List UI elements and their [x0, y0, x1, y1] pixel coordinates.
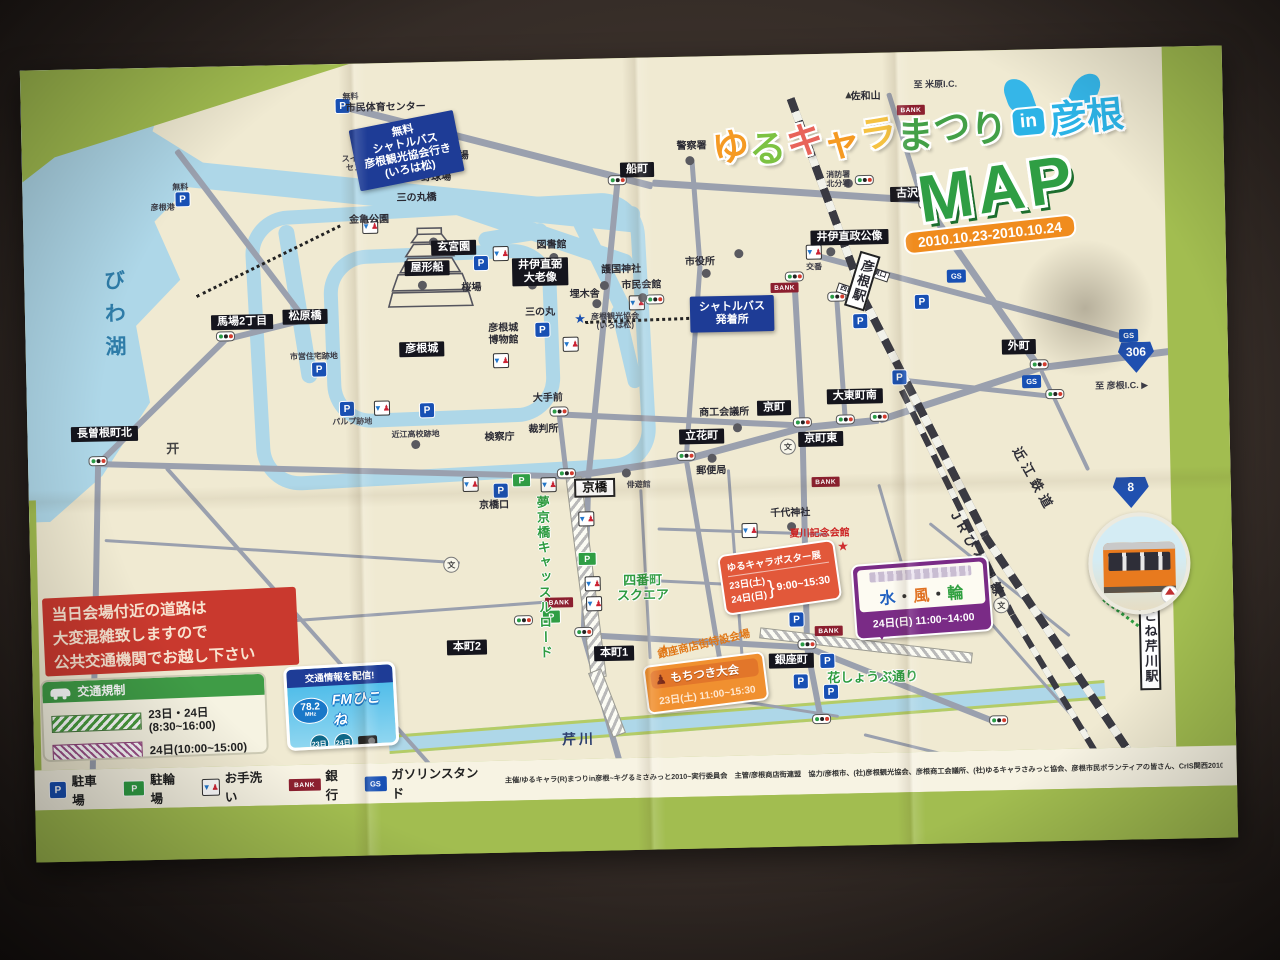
legend-label: ガソリンスタンド: [391, 762, 491, 802]
map-label: 外町: [1002, 339, 1036, 355]
toilet-icon: ▼♟: [586, 596, 602, 611]
traffic-signal-icon: [549, 406, 568, 416]
toilet-icon: ▼♟: [462, 477, 478, 492]
sui-fu-rin-char: 水: [879, 590, 897, 608]
toilet-icon: ▼♟: [540, 477, 556, 492]
fm-day-badge: 24日: [333, 733, 353, 752]
parking-icon: P: [473, 255, 489, 271]
title-place: 彦根: [1047, 83, 1126, 143]
map-label: 京町: [757, 400, 791, 416]
map-label: 船町: [620, 162, 654, 178]
map-label: 本町1: [594, 645, 634, 661]
parking-icon: P: [793, 673, 809, 689]
traffic-signal-icon: [797, 639, 816, 649]
paper-map: ゆるキャラまつりin彦根 MAP 2010.10.23-2010.10.24 3…: [20, 46, 1238, 863]
poster-date2: 24日(日): [731, 590, 768, 606]
traffic-signal-icon: [514, 615, 533, 625]
map-label: 無料: [342, 92, 358, 102]
school-icon: 文: [780, 439, 796, 455]
traffic-signal-icon: [836, 414, 855, 424]
fm-frequency-badge: 78.2 MHz: [292, 697, 329, 725]
map-label: 銀座町: [769, 653, 814, 669]
to-hikone-ic-label: 至 彦根I.C. ▶: [1095, 380, 1148, 392]
poster-dates: 23日(土) 24日(日): [729, 575, 769, 608]
title-char: キ: [781, 108, 826, 167]
title-in-badge: in: [1010, 105, 1047, 138]
title-char: る: [749, 118, 787, 173]
parking-icon: P: [311, 361, 327, 377]
map-label: 井伊直政公像: [810, 229, 888, 246]
map-label: 埋木舎: [570, 289, 600, 301]
regulation-time: 24日(10:00~15:00): [149, 738, 247, 758]
sui-fu-rin-char: ・: [930, 586, 948, 604]
map-label: 金亀公園: [349, 214, 389, 227]
credits-line: 主催/ゆるキャラ(R)まつりin彦根~キグるミさみっと2010~実行委員会 主管…: [505, 761, 1223, 786]
road: [689, 159, 702, 265]
legend-item-gas: GS ガソリンスタンド: [364, 762, 491, 803]
traffic-signal-icon: [870, 412, 889, 422]
map-label: 消防署 北分署: [826, 170, 850, 189]
congestion-notice: 当日会場付近の道路は 大変混雑致しますので 公共交通機関でお越し下さい: [42, 587, 299, 677]
map-label: 商工会議所: [699, 407, 749, 420]
sui-fu-rin-char: ・: [896, 589, 914, 607]
toilet-icon: ▼♟: [493, 246, 509, 261]
shuttle-bus-label: シャトルバス 発着所: [690, 295, 775, 333]
map-label: 四番町 スクエア: [616, 572, 669, 604]
poi-dot: [826, 247, 835, 256]
poi-dot: [702, 269, 711, 278]
map-label: 千代神社: [770, 507, 810, 520]
traffic-signal-icon: [989, 715, 1008, 725]
car-icon: [50, 688, 70, 697]
parking-icon: P: [493, 483, 509, 499]
traffic-signal-icon: [1030, 359, 1049, 369]
legend-label: 駐輪場: [150, 768, 188, 807]
road: [1037, 366, 1090, 472]
poi-dot: [733, 423, 742, 432]
parking-icon: P: [891, 369, 907, 385]
traffic-regulation-panel: 交通規制 23日・24日(8:30~16:00) 24日(10:00~15:00…: [40, 672, 269, 763]
poi-dot: [622, 468, 631, 477]
regulation-row: 24日(10:00~15:00): [52, 737, 259, 762]
parking-icon: P: [823, 684, 839, 700]
traffic-signal-icon: [88, 456, 107, 466]
parking-icon: P: [339, 401, 355, 417]
toilet-icon: ▼♟: [374, 400, 390, 415]
legend-item-bank: BANK 銀行: [288, 765, 351, 804]
map-label: 図書館: [536, 239, 566, 251]
parking-icon: P: [819, 653, 835, 669]
title-char: り: [970, 98, 1008, 153]
legend-label: お手洗い: [224, 766, 275, 805]
route-8-shield: 8: [1113, 477, 1150, 509]
map-label: 裁判所: [528, 424, 558, 436]
title-char: ラ: [855, 101, 900, 160]
map-label: 大東町南: [827, 388, 883, 404]
map-label: 夢京橋キャッスルロード: [534, 495, 553, 660]
traffic-signal-icon: [812, 714, 831, 724]
map-label: 三の丸橋: [396, 192, 436, 205]
map-label: 屋形船: [404, 260, 449, 276]
green-hatch-swatch: [51, 712, 142, 732]
map-label: 花しょうぶ通り: [827, 668, 918, 685]
map-label: 京橋口: [479, 500, 509, 512]
map-label: 彦根港: [151, 203, 175, 213]
photo-of-paper-map: { "title": { "chars": [ {"ch":"ゆ","color…: [0, 0, 1280, 960]
gas-station-icon: GS: [947, 269, 966, 282]
gas-station-icon: GS: [364, 776, 386, 791]
toilet-icon: ▼♟: [493, 353, 509, 368]
bicycle-parking-icon: P: [578, 552, 597, 566]
map-label: 玄宮園: [431, 240, 476, 256]
bank-icon: BANK: [812, 477, 840, 488]
map-label: 三の丸: [525, 307, 555, 319]
title-char: つ: [929, 94, 974, 153]
regulation-time: 23日・24日(8:30~16:00): [148, 702, 258, 734]
bank-icon: BANK: [815, 626, 843, 637]
title-char: ま: [896, 105, 934, 160]
parking-icon: P: [174, 191, 190, 207]
poi-dot: [734, 249, 743, 258]
traffic-signal-icon: [855, 175, 874, 185]
torii-icon: 开: [166, 438, 179, 457]
map-label: 検察庁: [485, 431, 515, 443]
map-label: 交番: [806, 262, 822, 272]
parking-icon: P: [419, 402, 435, 418]
traffic-signal-icon: [574, 627, 593, 637]
bank-icon: BANK: [770, 282, 798, 293]
map-label: 京町東: [798, 431, 843, 447]
traffic-signal-icon: [557, 468, 576, 478]
toilet-icon: ▼♟: [806, 244, 822, 259]
paper-margin-left: [29, 500, 42, 770]
poi-dot: [708, 454, 717, 463]
legend-item-parking: P 駐車場: [49, 770, 110, 809]
fm-station-name: FMひこね: [331, 686, 391, 729]
toilet-icon: ▼♟: [202, 778, 220, 795]
map-label: 近江高校跡地: [391, 429, 439, 439]
map-label: 馬場2丁目: [211, 314, 273, 330]
map-label: 夏川記念会館: [790, 527, 850, 540]
map-label: 彦根観光協会 (いろは松): [591, 311, 639, 331]
traffic-regulation-header: 交通規制: [42, 674, 265, 704]
mochi-event-title: もちつき大会: [670, 661, 740, 686]
bicycle-parking-icon: P: [512, 473, 531, 487]
star-icon: ★: [574, 311, 586, 327]
legend-item-toilet: ▼♟ お手洗い: [201, 766, 275, 806]
traffic-signal-icon: [676, 451, 695, 461]
map-label: 市民会館: [621, 279, 661, 292]
toilet-icon: ▼♟: [741, 523, 757, 538]
fm-unit: MHz: [305, 713, 317, 719]
map-label: 京橋: [574, 478, 615, 498]
toilet-icon: ▼♟: [585, 576, 601, 591]
sui-fu-rin-event-box: 水・風・輪 24日(日) 11:00~14:00: [850, 555, 993, 641]
map-label: 市役所: [685, 256, 715, 268]
train-photo: [1087, 511, 1191, 615]
traffic-regulation-title: 交通規制: [77, 681, 126, 700]
purple-hatch-swatch: [52, 741, 143, 761]
map-label: 立花町: [679, 429, 724, 445]
map-label: 俳遊館: [627, 480, 651, 490]
legend-item-bicycle-parking: P 駐輪場: [123, 768, 188, 807]
map-label: 桜場: [461, 282, 481, 294]
traffic-signal-icon: [645, 294, 664, 304]
toilet-icon: ▼♟: [578, 511, 594, 526]
to-maibara-ic-label: 至 米原I.C.: [913, 79, 957, 91]
map-label: 彦根城: [399, 341, 444, 357]
toilet-icon: ▼♟: [563, 337, 579, 352]
traffic-signal-icon: [216, 331, 235, 341]
road: [791, 279, 805, 425]
traffic-signal-icon: [1045, 389, 1064, 399]
map-label: 井伊直弼 大老像: [512, 257, 569, 286]
traffic-signal-icon: [785, 271, 804, 281]
map-label: 警察署: [676, 140, 706, 152]
map-label: 芹川: [562, 730, 596, 747]
map-label: 護国神社: [601, 264, 641, 277]
fm-radio-panel: 交通情報を配信! 78.2 MHz FMひこね 23日 24日: [283, 661, 400, 751]
bicycle-parking-icon: P: [123, 780, 145, 796]
title-char: ャ: [822, 111, 860, 166]
legend-label: 銀行: [325, 765, 351, 804]
bank-icon: BANK: [288, 779, 320, 792]
fm-day-badge: 23日: [309, 734, 329, 751]
brace-glyph: }: [766, 577, 776, 601]
map-label: 市民体育センター: [346, 101, 426, 114]
sui-fu-rin-char: 輪: [947, 585, 965, 603]
legend-label: 駐車場: [71, 770, 109, 809]
school-icon: 文: [443, 557, 459, 573]
map-label: 松原橋: [282, 309, 327, 325]
traffic-signal-icon: [793, 417, 812, 427]
poster-time: 9:00~15:30: [776, 574, 831, 594]
gas-station-icon: GS: [1119, 329, 1138, 342]
parking-icon: P: [788, 611, 804, 627]
parking-icon: P: [852, 313, 868, 329]
map-label: 本町2: [447, 640, 487, 656]
route-306-shield: 306: [1118, 341, 1155, 373]
map-label: 近江鉄道: [1009, 444, 1058, 514]
sui-fu-rin-char: 風: [913, 587, 931, 605]
star-icon: ★: [837, 538, 849, 554]
map-label: パルプ跡地: [332, 417, 372, 427]
title-char: ゆ: [708, 114, 753, 173]
map-label: 長曽根町北: [71, 426, 138, 442]
parking-icon: P: [534, 322, 550, 338]
gas-station-icon: GS: [1022, 375, 1041, 388]
map-canvas: ゆるキャラまつりin彦根 MAP 2010.10.23-2010.10.24 3…: [20, 46, 1236, 771]
road: [105, 539, 460, 564]
regulation-row: 23日・24日(8:30~16:00): [51, 702, 258, 738]
map-label: 彦根城 博物館: [488, 322, 518, 346]
map-label: 無料: [172, 182, 188, 192]
map-label: 大手前: [533, 392, 563, 404]
radio-icon: [357, 735, 377, 748]
map-label: 郵便局: [696, 465, 726, 477]
parking-icon: P: [49, 781, 67, 799]
parking-icon: P: [914, 294, 930, 310]
mochi-pounder-icon: ♟: [654, 672, 667, 686]
map-label: びわ湖: [100, 269, 127, 368]
paper-margin-right: [1162, 46, 1237, 747]
map-label: 市営住宅跡地: [290, 351, 338, 361]
map-label: 佐和山: [850, 91, 880, 103]
